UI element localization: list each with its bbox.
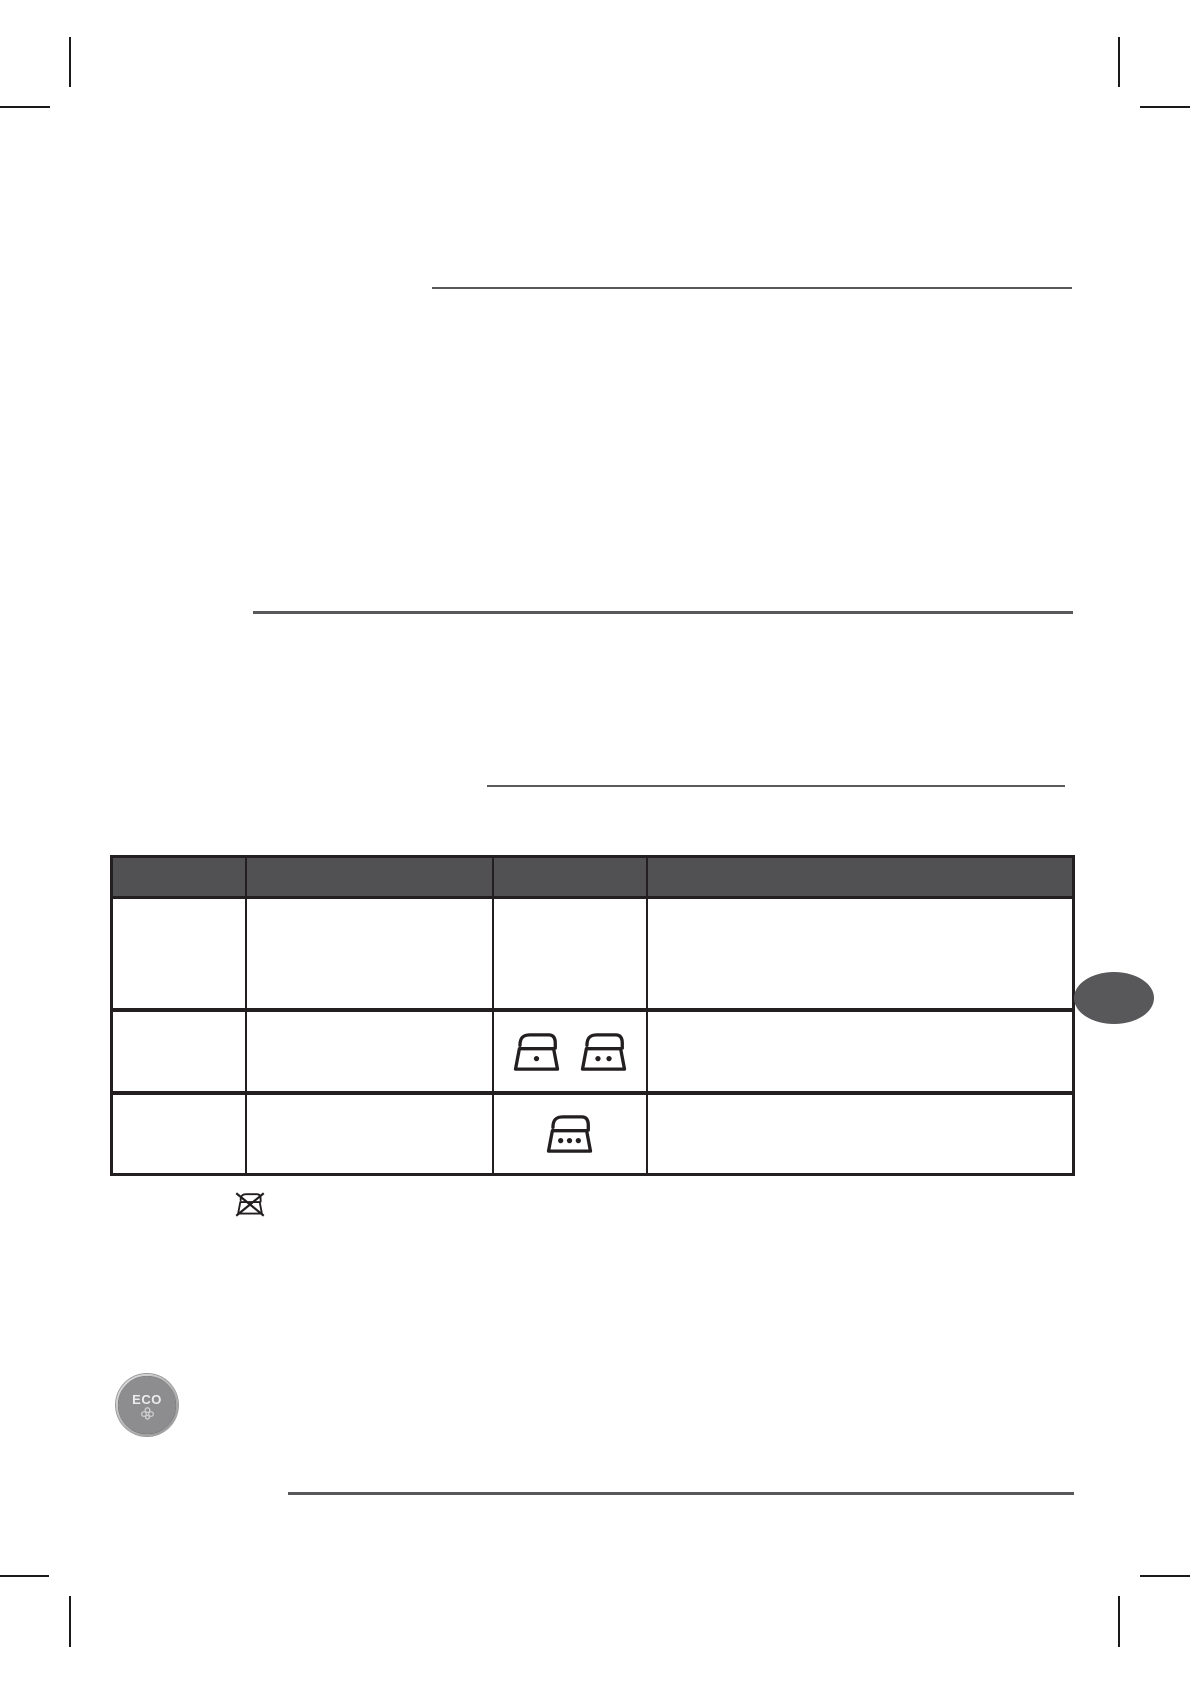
table-cell	[112, 898, 246, 1011]
table-cell	[246, 1093, 493, 1175]
crop-mark-top-left-horizontal	[0, 106, 50, 108]
manual-page: ECO	[0, 0, 1190, 1684]
do-not-iron-icon	[235, 1192, 265, 1217]
table-cell	[246, 898, 493, 1011]
crop-mark-bottom-left-vertical	[69, 1596, 71, 1647]
table-row	[112, 898, 1074, 1011]
crop-mark-top-left-vertical	[69, 37, 71, 87]
table-cell	[647, 1093, 1074, 1175]
table-header-cell	[246, 857, 493, 898]
iron-symbols-cell	[493, 898, 647, 1011]
care-table	[110, 855, 1075, 1176]
table-header-cell	[647, 857, 1074, 898]
section-rule-3	[487, 785, 1065, 787]
eco-button-face: ECO	[118, 1376, 176, 1434]
table-row	[112, 1093, 1074, 1175]
section-tab	[1074, 972, 1154, 1024]
table-cell	[647, 898, 1074, 1011]
table-header-cell	[112, 857, 246, 898]
table-row	[112, 1010, 1074, 1093]
table-cell	[246, 1010, 493, 1093]
table-header-cell	[493, 857, 647, 898]
table-cell	[647, 1010, 1074, 1093]
iron-three-dots-icon	[543, 1113, 596, 1155]
section-rule-1	[432, 287, 1072, 289]
section-rule-2	[253, 611, 1073, 614]
eco-steam-button: ECO	[116, 1374, 178, 1436]
iron-symbols-cell	[493, 1010, 647, 1093]
table-cell	[112, 1093, 246, 1175]
iron-symbols-cell	[493, 1093, 647, 1175]
crop-mark-bottom-right-vertical	[1118, 1596, 1120, 1647]
section-rule-4	[288, 1492, 1074, 1495]
table-header-row	[112, 857, 1074, 898]
iron-two-dots-icon	[577, 1031, 630, 1073]
crop-mark-bottom-left-horizontal	[0, 1575, 49, 1577]
eco-label: ECO	[132, 1393, 162, 1406]
crop-mark-bottom-right-horizontal	[1140, 1575, 1190, 1577]
steam-flower-icon	[141, 1407, 154, 1420]
crop-mark-top-right-vertical	[1118, 37, 1120, 87]
crop-mark-top-right-horizontal	[1140, 106, 1190, 108]
iron-one-dot-icon	[510, 1031, 563, 1073]
table-cell	[112, 1010, 246, 1093]
